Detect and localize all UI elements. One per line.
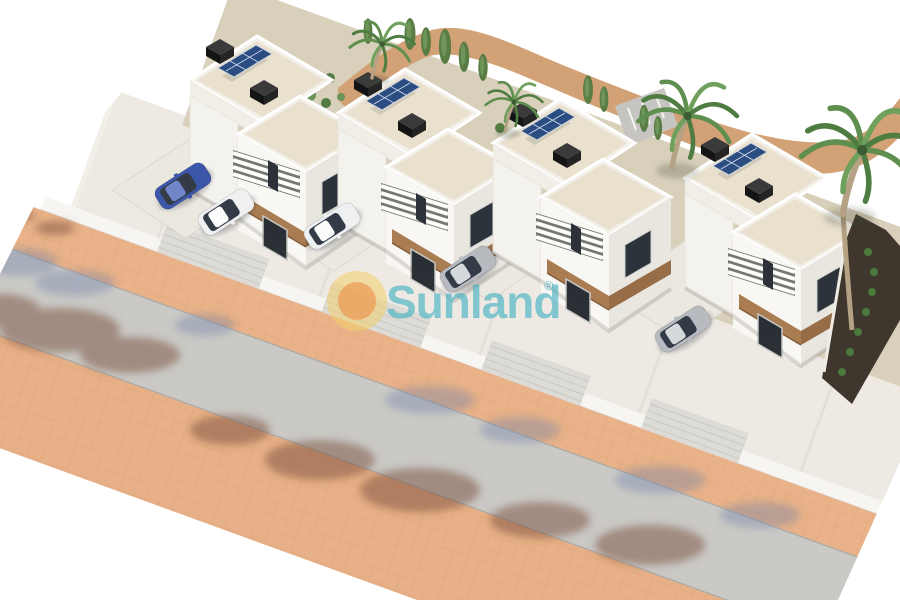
architectural-render: Sunland ® — [0, 0, 900, 600]
watermark: Sunland ® — [327, 271, 560, 331]
watermark-text: Sunland — [386, 276, 560, 328]
registered-mark: ® — [544, 278, 554, 293]
sun-logo — [327, 271, 387, 331]
